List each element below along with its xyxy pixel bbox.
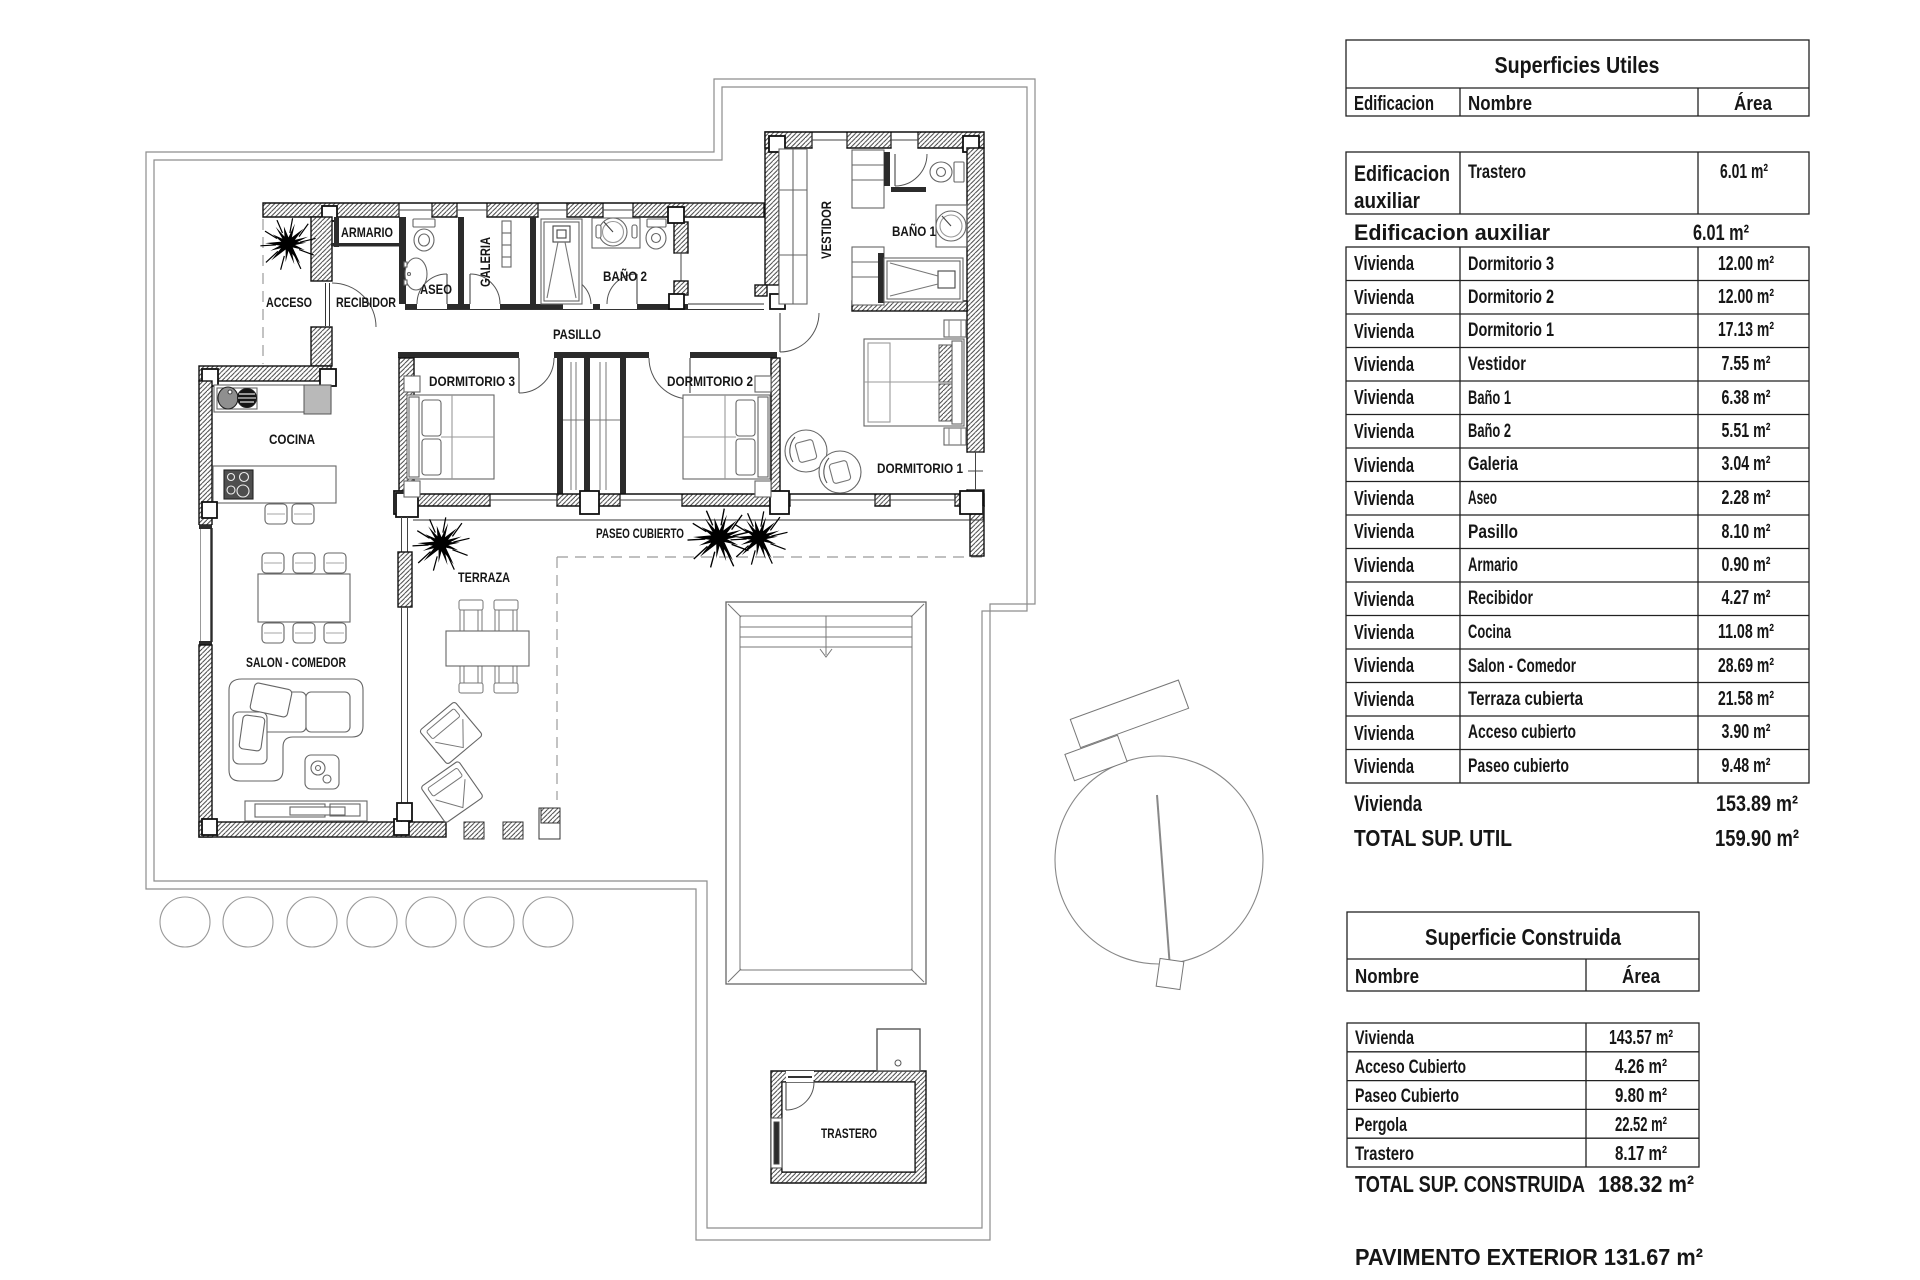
svg-text:21.58 m²: 21.58 m² xyxy=(1718,688,1774,710)
svg-text:Pasillo: Pasillo xyxy=(1468,521,1518,543)
svg-text:ARMARIO: ARMARIO xyxy=(341,224,393,240)
svg-text:Vivienda: Vivienda xyxy=(1354,253,1415,275)
svg-text:BAÑO 1: BAÑO 1 xyxy=(892,222,936,239)
svg-text:DORMITORIO 3: DORMITORIO 3 xyxy=(429,373,515,389)
svg-text:Armario: Armario xyxy=(1468,554,1518,576)
svg-text:188.32 m²: 188.32 m² xyxy=(1598,1171,1694,1197)
svg-text:6.38 m²: 6.38 m² xyxy=(1722,387,1771,409)
svg-text:153.89 m²: 153.89 m² xyxy=(1716,791,1798,816)
svg-text:Área: Área xyxy=(1734,92,1773,115)
svg-text:SALON - COMEDOR: SALON - COMEDOR xyxy=(246,654,346,670)
svg-text:Baño 1: Baño 1 xyxy=(1468,387,1511,409)
svg-text:Vivienda: Vivienda xyxy=(1354,354,1415,376)
svg-text:Vivienda: Vivienda xyxy=(1354,521,1415,543)
svg-text:Paseo cubierto: Paseo cubierto xyxy=(1468,755,1569,777)
svg-text:Superficie Construida: Superficie Construida xyxy=(1425,924,1621,950)
svg-text:0.90 m²: 0.90 m² xyxy=(1722,554,1771,576)
svg-text:PASILLO: PASILLO xyxy=(553,326,601,342)
svg-text:Vivienda: Vivienda xyxy=(1354,488,1415,510)
svg-text:Edificacion: Edificacion xyxy=(1354,93,1434,115)
svg-text:TRASTERO: TRASTERO xyxy=(821,1125,877,1141)
svg-text:Vivienda: Vivienda xyxy=(1354,421,1415,443)
svg-text:3.90 m²: 3.90 m² xyxy=(1722,721,1771,743)
svg-text:Trastero: Trastero xyxy=(1355,1143,1414,1165)
svg-text:17.13 m²: 17.13 m² xyxy=(1718,319,1774,341)
svg-text:Paseo Cubierto: Paseo Cubierto xyxy=(1355,1085,1459,1107)
svg-text:ACCESO: ACCESO xyxy=(266,294,312,310)
svg-text:12.00 m²: 12.00 m² xyxy=(1718,253,1774,275)
svg-text:PASEO CUBIERTO: PASEO CUBIERTO xyxy=(596,525,684,541)
svg-text:BAÑO 2: BAÑO 2 xyxy=(603,267,647,284)
svg-text:Vestidor: Vestidor xyxy=(1468,353,1526,375)
svg-text:6.01 m²: 6.01 m² xyxy=(1720,161,1768,183)
svg-text:Superficies Utiles: Superficies Utiles xyxy=(1495,52,1660,78)
svg-text:9.80 m²: 9.80 m² xyxy=(1615,1085,1667,1107)
svg-text:TERRAZA: TERRAZA xyxy=(458,569,510,585)
svg-text:Vivienda: Vivienda xyxy=(1354,723,1415,745)
svg-text:22.52 m²: 22.52 m² xyxy=(1615,1114,1667,1136)
svg-text:Nombre: Nombre xyxy=(1468,93,1532,115)
svg-text:4.26 m²: 4.26 m² xyxy=(1615,1056,1667,1078)
svg-text:7.55 m²: 7.55 m² xyxy=(1722,353,1771,375)
svg-text:ASEO: ASEO xyxy=(420,281,452,297)
svg-text:Nombre: Nombre xyxy=(1355,966,1419,988)
svg-text:DORMITORIO 2: DORMITORIO 2 xyxy=(667,373,753,389)
svg-text:Vivienda: Vivienda xyxy=(1354,589,1415,611)
svg-text:Trastero: Trastero xyxy=(1468,161,1526,183)
svg-text:Área: Área xyxy=(1622,965,1661,988)
svg-text:GALERIA: GALERIA xyxy=(477,237,493,287)
svg-text:Aseo: Aseo xyxy=(1468,487,1497,509)
svg-text:Dormitorio 1: Dormitorio 1 xyxy=(1468,319,1554,341)
svg-text:5.51 m²: 5.51 m² xyxy=(1722,420,1771,442)
svg-text:143.57 m²: 143.57 m² xyxy=(1609,1027,1673,1049)
svg-text:2.28 m²: 2.28 m² xyxy=(1722,487,1771,509)
svg-text:PAVIMENTO EXTERIOR 131.67 m²: PAVIMENTO EXTERIOR 131.67 m² xyxy=(1355,1244,1703,1270)
svg-text:Cocina: Cocina xyxy=(1468,621,1511,643)
svg-text:Edificacion: Edificacion xyxy=(1354,161,1450,186)
svg-text:Vivienda: Vivienda xyxy=(1354,387,1415,409)
svg-text:8.10 m²: 8.10 m² xyxy=(1722,521,1771,543)
svg-text:Acceso cubierto: Acceso cubierto xyxy=(1468,721,1576,743)
svg-text:9.48 m²: 9.48 m² xyxy=(1722,755,1771,777)
svg-text:DORMITORIO 1: DORMITORIO 1 xyxy=(877,460,963,476)
svg-text:Baño 2: Baño 2 xyxy=(1468,420,1511,442)
svg-text:Vivienda: Vivienda xyxy=(1355,1027,1414,1049)
svg-text:4.27 m²: 4.27 m² xyxy=(1722,587,1771,609)
svg-text:11.08 m²: 11.08 m² xyxy=(1718,621,1774,643)
svg-text:Vivienda: Vivienda xyxy=(1354,622,1415,644)
svg-text:Vivienda: Vivienda xyxy=(1354,455,1415,477)
svg-text:Vivienda: Vivienda xyxy=(1354,756,1415,778)
svg-text:Salon - Comedor: Salon - Comedor xyxy=(1468,655,1576,677)
svg-text:Vivienda: Vivienda xyxy=(1354,321,1415,343)
svg-text:Edificacion auxiliar: Edificacion auxiliar xyxy=(1354,220,1550,245)
svg-text:Vivienda: Vivienda xyxy=(1354,791,1423,816)
svg-text:VESTIDOR: VESTIDOR xyxy=(818,201,834,259)
svg-text:TOTAL SUP. CONSTRUIDA: TOTAL SUP. CONSTRUIDA xyxy=(1355,1171,1585,1197)
svg-text:Vivienda: Vivienda xyxy=(1354,287,1415,309)
svg-text:6.01 m²: 6.01 m² xyxy=(1693,220,1749,245)
svg-text:12.00 m²: 12.00 m² xyxy=(1718,286,1774,308)
svg-text:Acceso Cubierto: Acceso Cubierto xyxy=(1355,1056,1466,1078)
svg-text:Vivienda: Vivienda xyxy=(1354,555,1415,577)
svg-text:COCINA: COCINA xyxy=(269,431,315,447)
svg-text:RECIBIDOR: RECIBIDOR xyxy=(336,294,396,310)
svg-text:Dormitorio 3: Dormitorio 3 xyxy=(1468,253,1554,275)
svg-text:Galeria: Galeria xyxy=(1468,453,1518,475)
svg-text:8.17 m²: 8.17 m² xyxy=(1615,1143,1667,1165)
svg-text:28.69 m²: 28.69 m² xyxy=(1718,655,1774,677)
svg-text:3.04 m²: 3.04 m² xyxy=(1722,453,1771,475)
svg-text:Pergola: Pergola xyxy=(1355,1114,1407,1136)
svg-text:Dormitorio 2: Dormitorio 2 xyxy=(1468,286,1554,308)
svg-text:Vivienda: Vivienda xyxy=(1354,655,1415,677)
svg-text:Recibidor: Recibidor xyxy=(1468,587,1533,609)
svg-text:TOTAL SUP. UTIL: TOTAL SUP. UTIL xyxy=(1354,825,1512,851)
svg-text:auxiliar: auxiliar xyxy=(1354,188,1420,213)
svg-text:Terraza cubierta: Terraza cubierta xyxy=(1468,688,1583,710)
svg-text:159.90 m²: 159.90 m² xyxy=(1715,825,1799,851)
svg-text:Vivienda: Vivienda xyxy=(1354,689,1415,711)
